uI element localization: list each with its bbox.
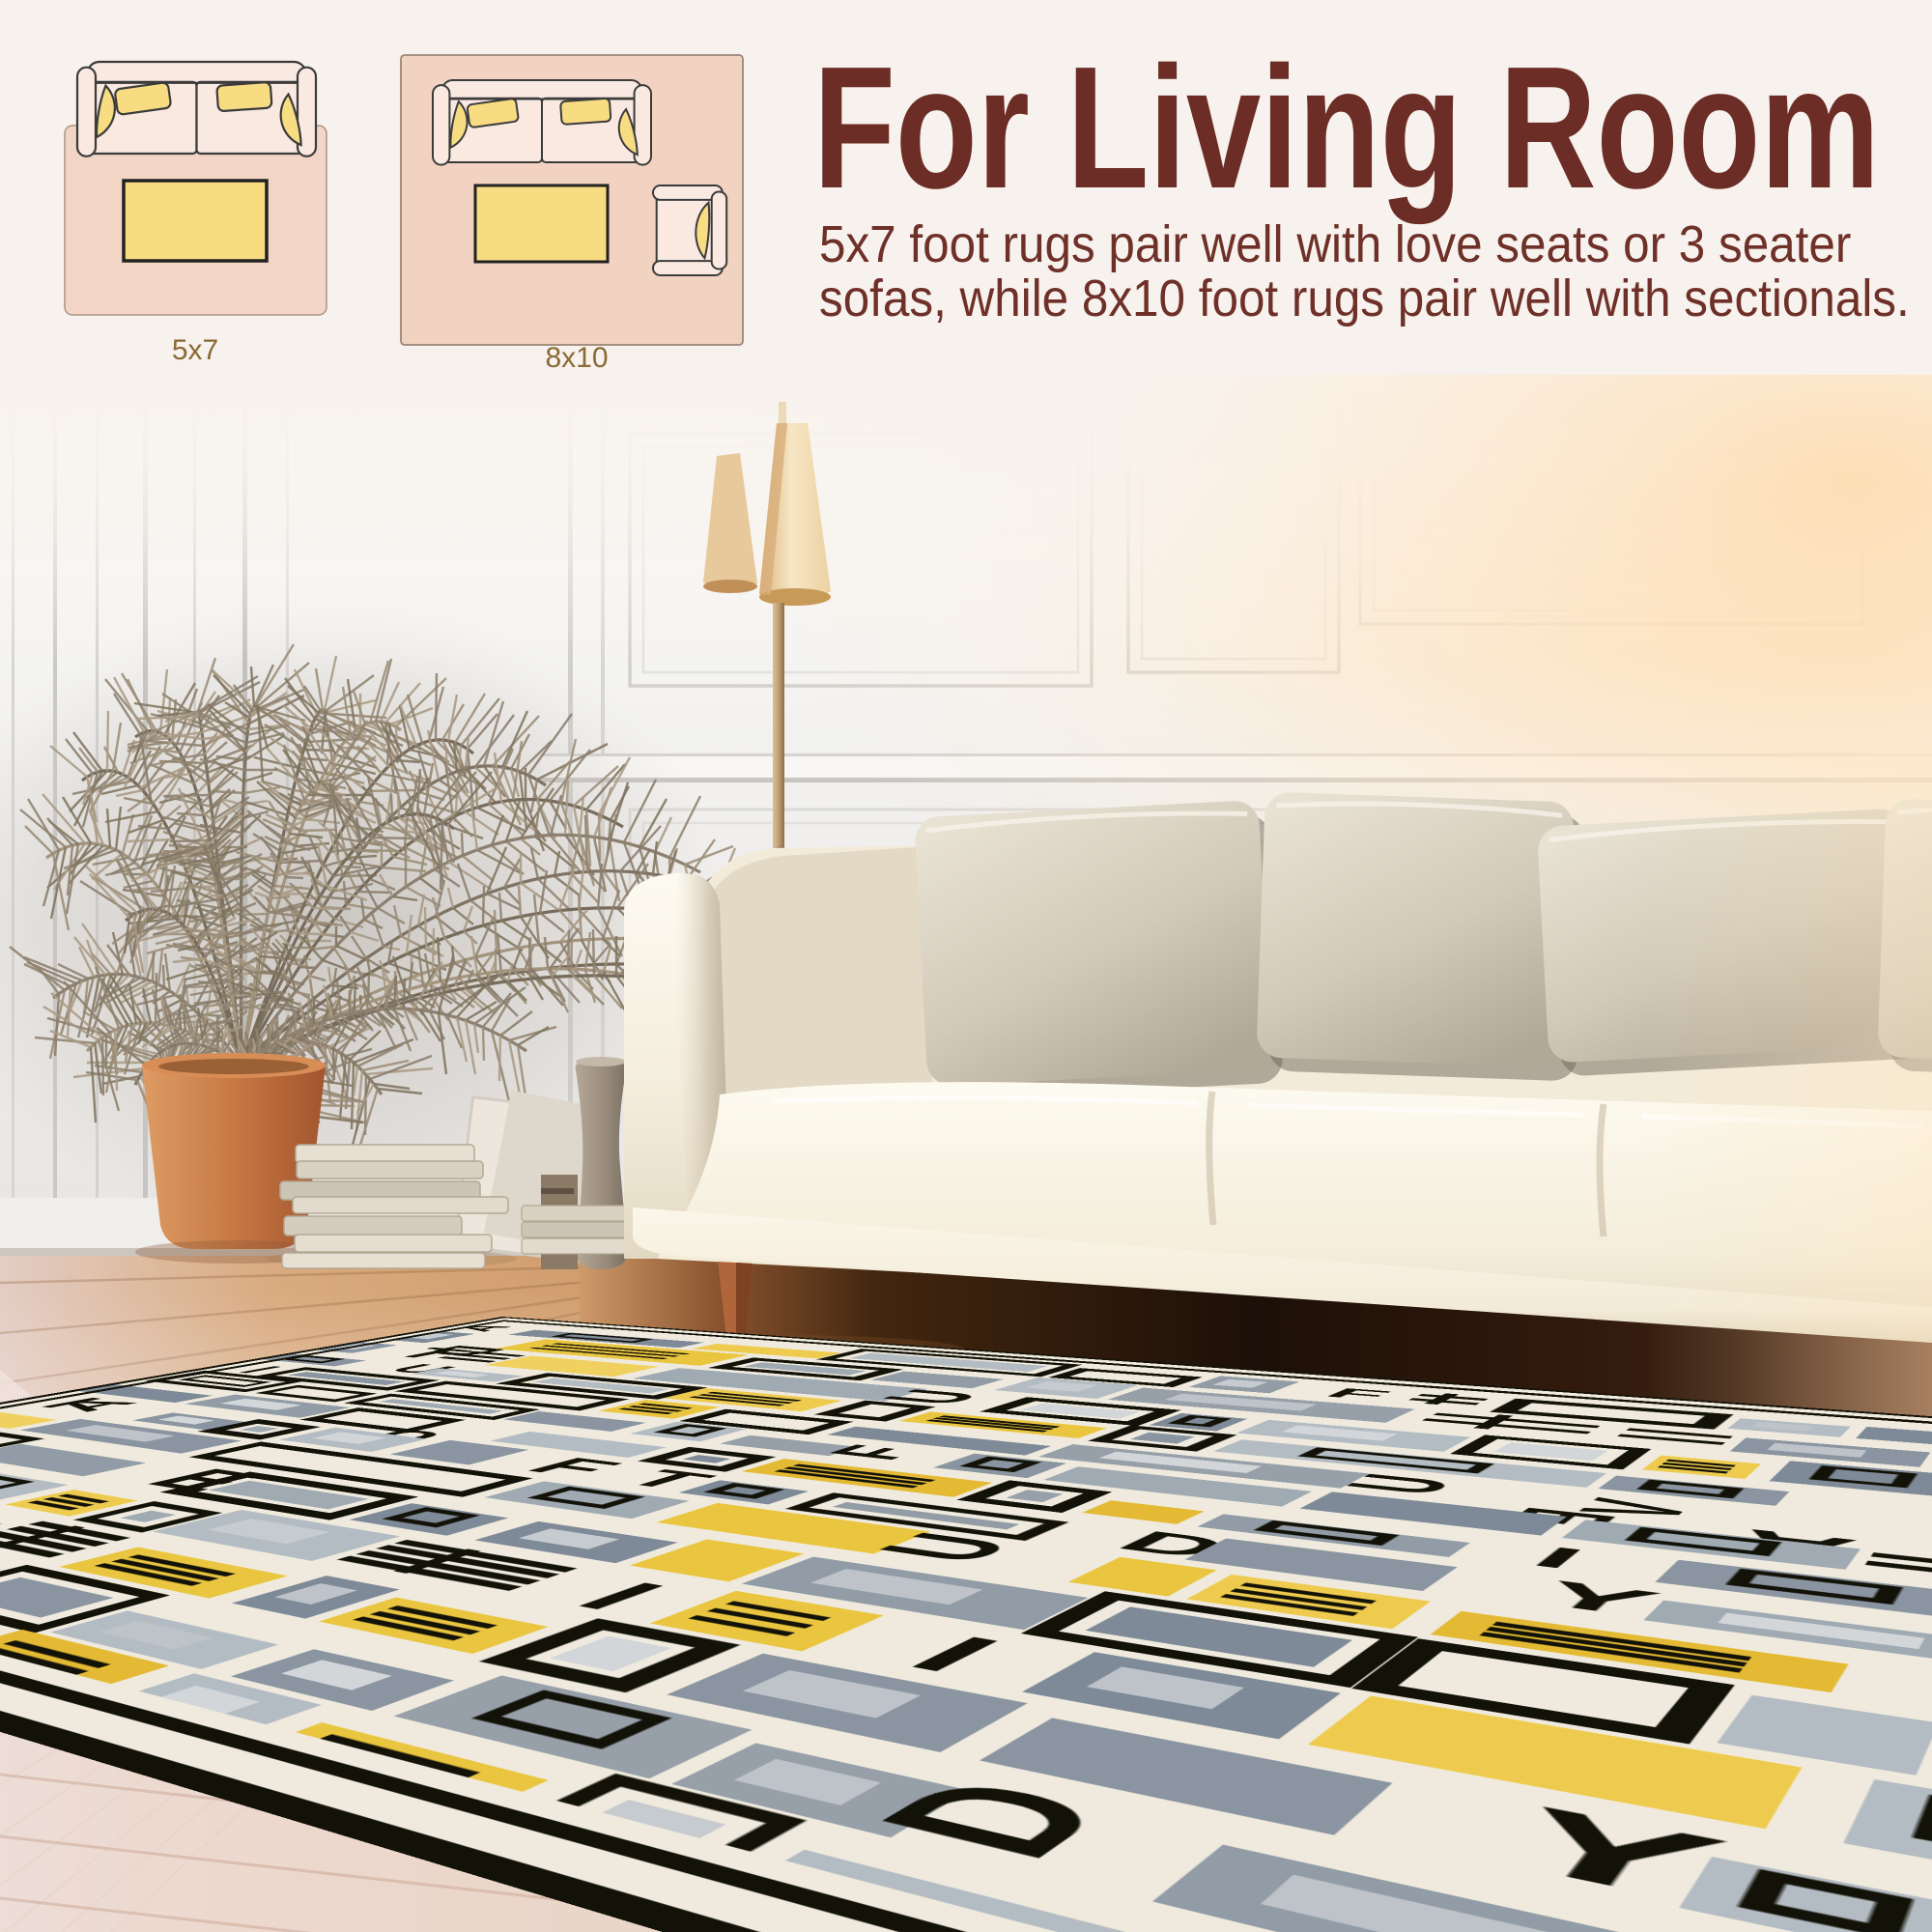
svg-text:5x7: 5x7 (172, 334, 218, 366)
svg-text:8x10: 8x10 (545, 342, 608, 374)
